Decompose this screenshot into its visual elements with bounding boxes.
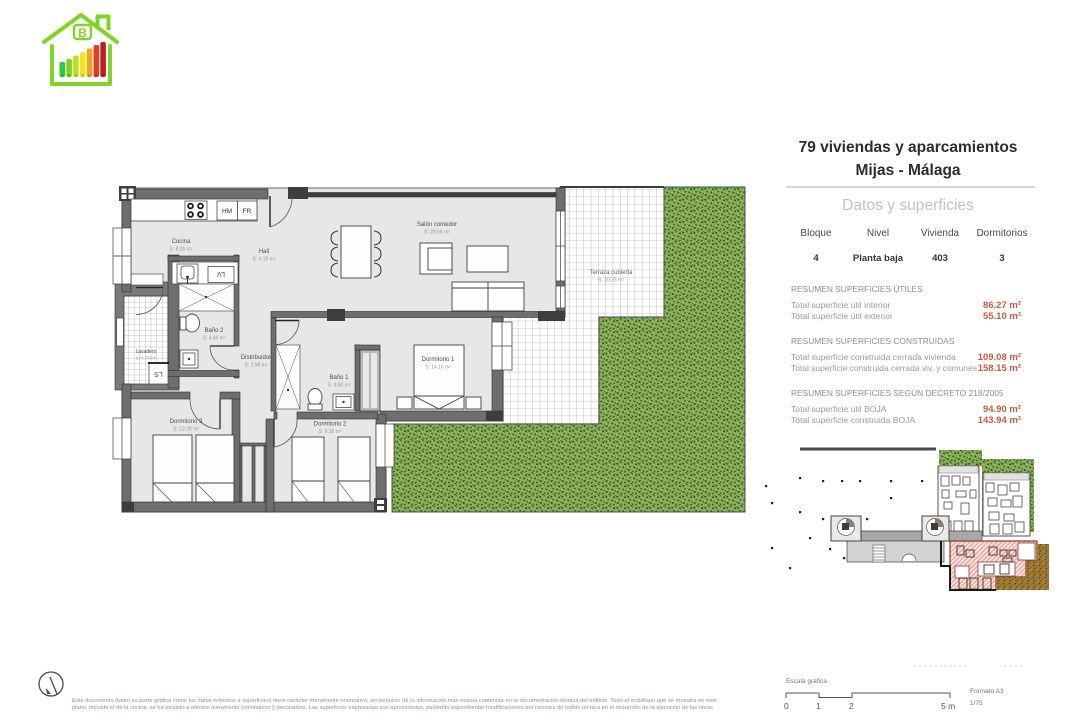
svg-text:Nivel: Nivel [867, 228, 889, 239]
svg-text:Este documento (tanto su parte: Este documento (tanto su parte gráfica c… [72, 698, 717, 704]
svg-text:403: 403 [932, 253, 948, 264]
svg-text:158.15 m²: 158.15 m² [978, 363, 1021, 374]
svg-text:Distribuidor: Distribuidor [241, 355, 271, 361]
svg-text:79 viviendas y aparcamientos: 79 viviendas y aparcamientos [799, 139, 1018, 156]
svg-text:Bloque: Bloque [800, 228, 832, 239]
svg-text:Formato A3: Formato A3 [970, 688, 1004, 695]
svg-text:109.08 m²: 109.08 m² [978, 352, 1021, 363]
svg-text:0: 0 [784, 701, 789, 711]
svg-text:LS: LS [154, 370, 163, 377]
svg-text:86.27 m²: 86.27 m² [983, 300, 1021, 311]
svg-text:F: F [95, 74, 97, 78]
svg-text:1: 1 [816, 701, 821, 711]
svg-text:2: 2 [849, 701, 854, 711]
svg-text:S: 3.73 m²: S: 3.73 m² [136, 356, 157, 361]
svg-text:Total superficie útil interior: Total superficie útil interior [791, 300, 890, 310]
svg-text:S: 4.18 m²: S: 4.18 m² [252, 257, 275, 263]
svg-text:Cocina: Cocina [172, 239, 191, 245]
svg-text:LV: LV [217, 270, 225, 277]
svg-text:Dormitorios: Dormitorios [976, 228, 1027, 239]
svg-text:143.94 m²: 143.94 m² [978, 415, 1021, 426]
svg-text:S: 9.36 m²: S: 9.36 m² [318, 429, 341, 435]
svg-text:Total superficie construida ce: Total superficie construida cerrada vivi… [791, 352, 956, 362]
svg-text:Hall: Hall [259, 249, 269, 255]
svg-text:S: 4.46 m²: S: 4.46 m² [202, 336, 225, 342]
svg-text:Total superficie útil BOJA: Total superficie útil BOJA [791, 404, 887, 414]
svg-text:Total superficie construida ce: Total superficie construida cerrada viv.… [791, 363, 977, 373]
svg-text:94.90 m²: 94.90 m² [983, 404, 1021, 415]
svg-text:Dormitorio 3: Dormitorio 3 [170, 419, 203, 425]
svg-text:Dormitorio 1: Dormitorio 1 [422, 357, 455, 363]
svg-text:Escala gráfica: Escala gráfica [786, 678, 827, 685]
svg-text:B: B [68, 74, 70, 78]
svg-text:Total superficie construida BO: Total superficie construida BOJA [791, 415, 915, 425]
svg-text:S: 3.98 m²: S: 3.98 m² [244, 363, 267, 369]
svg-text:RESUMEN SUPERFICIES SEGÚN DECR: RESUMEN SUPERFICIES SEGÚN DECRETO 218/20… [791, 388, 1004, 398]
svg-text:FR: FR [243, 208, 252, 215]
svg-text:Baño 2: Baño 2 [204, 328, 224, 334]
svg-text:RESUMEN SUPERFICIES ÚTILES: RESUMEN SUPERFICIES ÚTILES [791, 284, 923, 294]
svg-text:HM: HM [222, 208, 232, 215]
svg-text:S: 20.35 m²: S: 20.35 m² [598, 278, 624, 284]
svg-text:55.10 m²: 55.10 m² [983, 311, 1021, 322]
svg-text:S: 8.26 m²: S: 8.26 m² [169, 247, 192, 253]
svg-text:B: B [78, 26, 87, 40]
svg-text:Planta baja: Planta baja [853, 253, 904, 264]
svg-text:5 m: 5 m [941, 701, 955, 711]
svg-text:E: E [88, 74, 90, 78]
svg-text:RESUMEN SUPERFICIES CONSTRUIDA: RESUMEN SUPERFICIES CONSTRUIDAS [791, 336, 955, 346]
svg-text:S: 12.28 m²: S: 12.28 m² [173, 427, 199, 433]
svg-text:Mijas - Málaga: Mijas - Málaga [855, 162, 960, 179]
svg-text:S: 29.66 m²: S: 29.66 m² [424, 230, 450, 236]
svg-text:Dormitorio 2: Dormitorio 2 [314, 422, 347, 428]
svg-text:Baño 1: Baño 1 [329, 375, 349, 381]
svg-text:Salón comedor: Salón comedor [417, 222, 457, 228]
svg-text:Vivienda: Vivienda [921, 228, 960, 239]
svg-text:plano, incluido el de la cocin: plano, incluido el de la cocina, se ha i… [72, 705, 713, 711]
svg-text:S: 4.60 m²: S: 4.60 m² [327, 383, 350, 389]
svg-text:1/75: 1/75 [970, 700, 983, 707]
svg-text:3: 3 [999, 253, 1004, 264]
svg-text:Terraza cubierta: Terraza cubierta [589, 270, 633, 276]
svg-text:4: 4 [813, 253, 819, 264]
svg-text:Lavadero: Lavadero [136, 349, 157, 355]
svg-text:S: 14.16 m²: S: 14.16 m² [425, 365, 451, 371]
svg-text:Total superficie útil exterior: Total superficie útil exterior [791, 311, 893, 321]
svg-text:Datos y superficies: Datos y superficies [842, 197, 974, 214]
